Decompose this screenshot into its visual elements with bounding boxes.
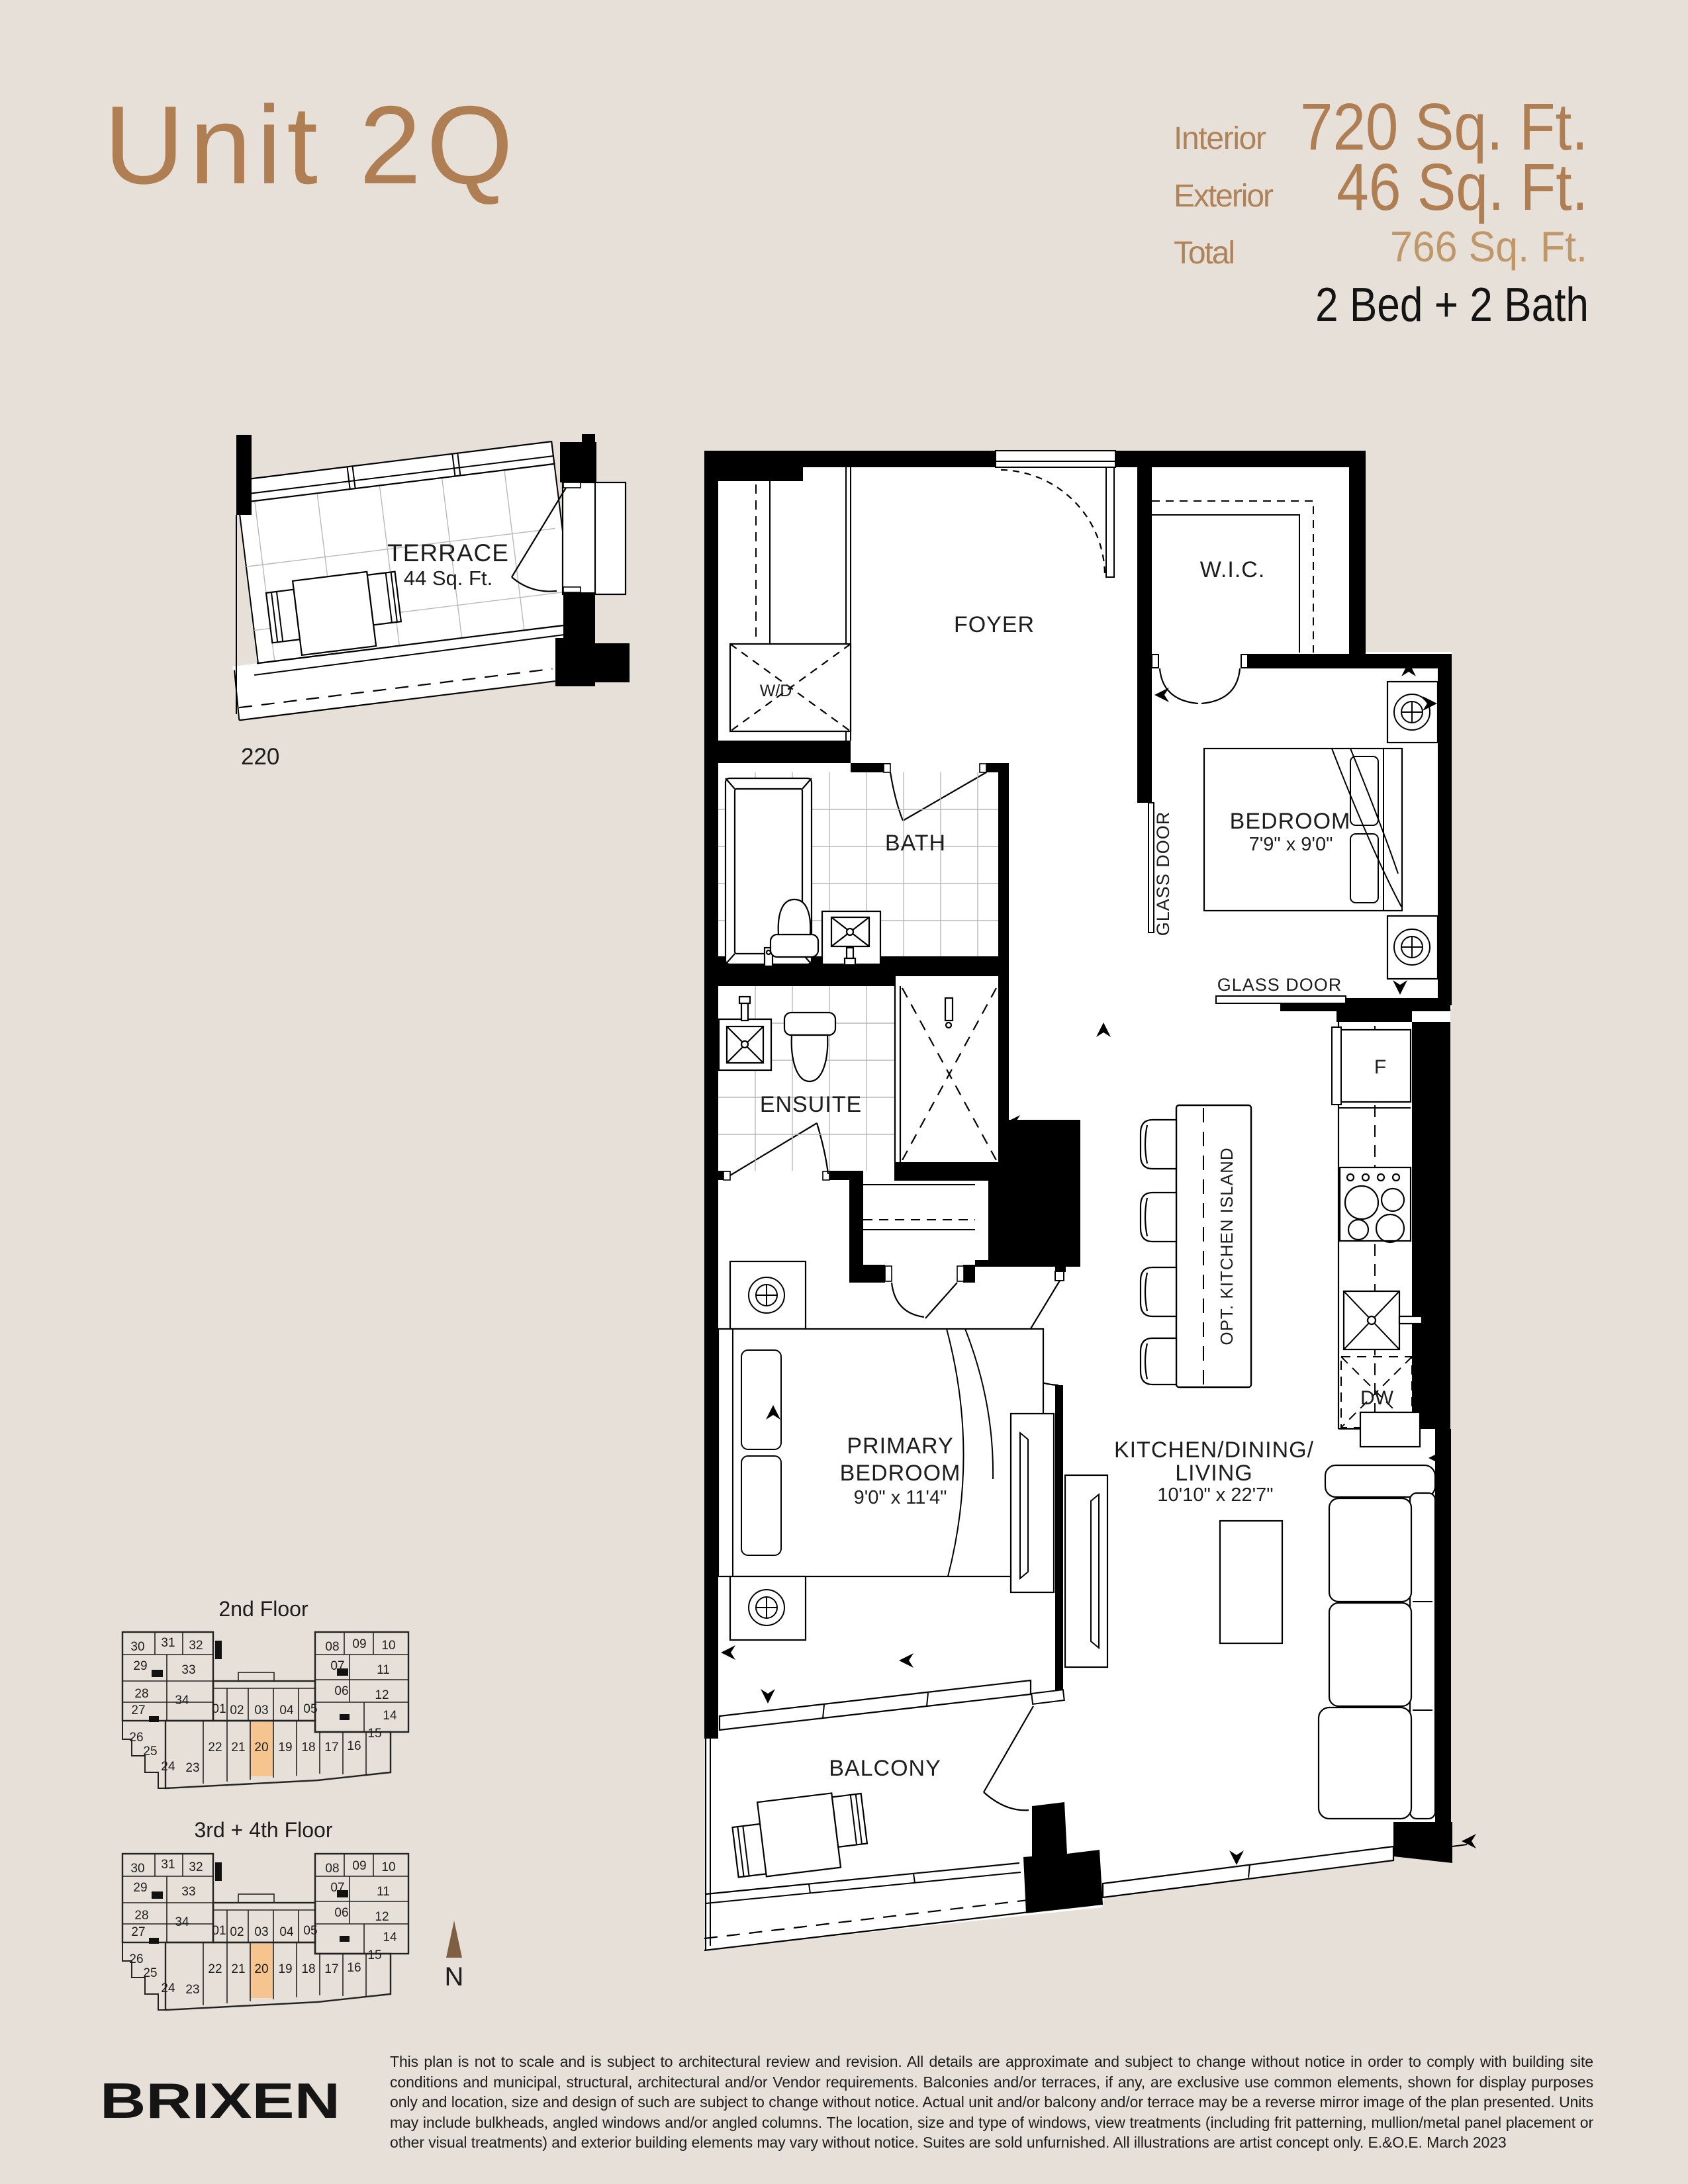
svg-text:BALCONY: BALCONY: [829, 1756, 941, 1781]
svg-text:ENSUITE: ENSUITE: [760, 1092, 862, 1117]
svg-text:GLASS DOOR: GLASS DOOR: [1217, 975, 1342, 995]
svg-text:7'9" x 9'0": 7'9" x 9'0": [1249, 834, 1333, 855]
svg-text:9'0" x 11'4": 9'0" x 11'4": [854, 1487, 947, 1508]
svg-text:GLASS DOOR: GLASS DOOR: [1153, 811, 1173, 936]
svg-text:46 Sq. Ft.: 46 Sq. Ft.: [1336, 150, 1588, 224]
svg-text:W/D: W/D: [760, 682, 792, 700]
svg-text:N: N: [445, 1962, 464, 1991]
svg-text:DW: DW: [1360, 1387, 1394, 1409]
svg-text:Unit 2Q: Unit 2Q: [104, 83, 513, 207]
svg-text:44 Sq. Ft.: 44 Sq. Ft.: [404, 567, 492, 590]
svg-text:KITCHEN/DINING/: KITCHEN/DINING/: [1114, 1437, 1314, 1463]
svg-text:PRIMARY: PRIMARY: [847, 1433, 953, 1459]
svg-text:220: 220: [241, 744, 279, 770]
svg-text:BEDROOM: BEDROOM: [1230, 809, 1351, 834]
svg-text:BEDROOM: BEDROOM: [840, 1461, 961, 1486]
svg-text:BATH: BATH: [885, 831, 946, 856]
svg-text:10'10" x 22'7": 10'10" x 22'7": [1157, 1484, 1273, 1506]
svg-text:3rd + 4th Floor: 3rd + 4th Floor: [195, 1818, 333, 1842]
svg-text:TERRACE: TERRACE: [387, 539, 509, 567]
svg-text:FOYER: FOYER: [954, 612, 1035, 637]
svg-text:Interior: Interior: [1174, 121, 1266, 156]
svg-text:Exterior: Exterior: [1174, 179, 1274, 214]
svg-text:BRIXEN: BRIXEN: [100, 2073, 340, 2128]
svg-text:F: F: [1374, 1056, 1386, 1078]
svg-text:OPT. KITCHEN ISLAND: OPT. KITCHEN ISLAND: [1217, 1147, 1237, 1345]
svg-text:2 Bed + 2 Bath: 2 Bed + 2 Bath: [1315, 279, 1589, 332]
svg-text:Total: Total: [1174, 236, 1235, 271]
svg-text:LIVING: LIVING: [1175, 1461, 1252, 1486]
svg-text:2nd Floor: 2nd Floor: [218, 1597, 308, 1621]
svg-text:W.I.C.: W.I.C.: [1200, 557, 1266, 582]
svg-text:766 Sq. Ft.: 766 Sq. Ft.: [1390, 222, 1587, 271]
